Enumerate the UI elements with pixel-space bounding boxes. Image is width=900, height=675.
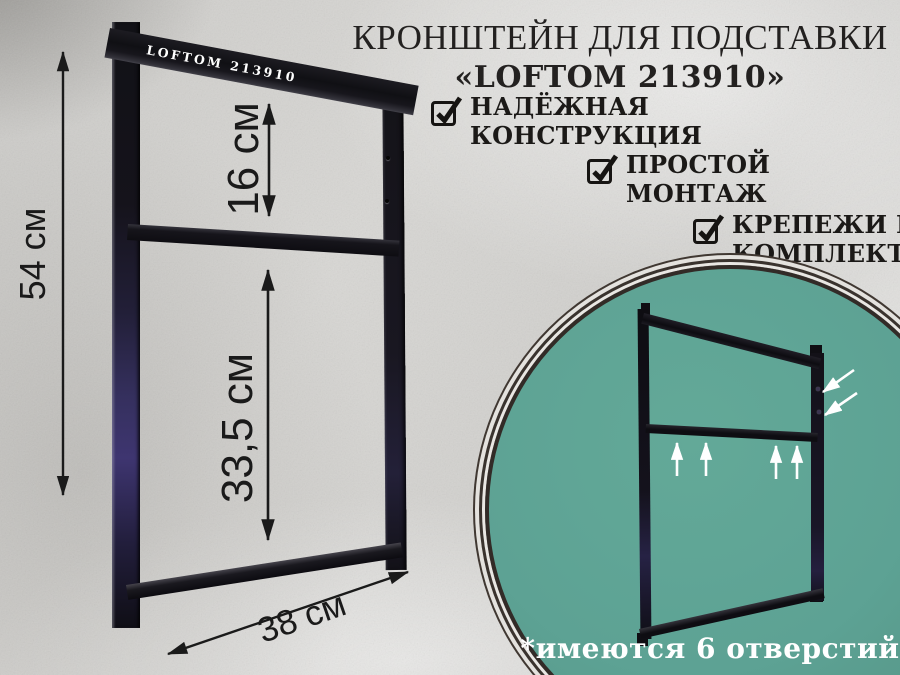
feature-line: НАДЁЖНАЯ <box>470 92 702 121</box>
frame-left-bar <box>112 22 140 628</box>
checkbox-checked-icon <box>586 152 619 185</box>
feature-line: МОНТАЖ <box>626 179 770 208</box>
hole-arrows <box>489 269 900 675</box>
mount-hole <box>385 199 389 203</box>
feature-item-reliable: НАДЁЖНАЯ КОНСТРУКЦИЯ <box>430 92 702 150</box>
feature-line: КОМПЛЕКТЕ <box>732 239 900 268</box>
detail-inset-circle <box>485 265 900 675</box>
feature-text: КРЕПЕЖИ В КОМПЛЕКТЕ <box>732 210 900 268</box>
feature-text: ПРОСТОЙ МОНТАЖ <box>626 150 770 208</box>
hole-arrow-diagonal <box>825 393 857 415</box>
hole-arrow-diagonal <box>823 370 854 392</box>
hole-count-note: *имеются 6 отверстий <box>520 632 900 665</box>
feature-line: КРЕПЕЖИ В <box>732 210 900 239</box>
dimension-label-bottom-section: 33,5 см <box>213 338 263 518</box>
feature-item-hardware-included: КРЕПЕЖИ В КОМПЛЕКТЕ <box>692 210 900 268</box>
product-code-title: «LOFTOM 213910» <box>340 60 900 95</box>
header: КРОНШТЕЙН ДЛЯ ПОДСТАВКИ «LOFTOM 213910» <box>340 18 900 95</box>
dimension-label-height: 54 см <box>12 184 54 324</box>
feature-line: ПРОСТОЙ <box>626 150 770 179</box>
feature-item-easy-mount: ПРОСТОЙ МОНТАЖ <box>586 150 770 208</box>
mount-hole <box>386 156 390 160</box>
page-title: КРОНШТЕЙН ДЛЯ ПОДСТАВКИ <box>340 18 900 58</box>
frame-right-bar <box>382 88 406 570</box>
feature-text: НАДЁЖНАЯ КОНСТРУКЦИЯ <box>470 92 702 150</box>
feature-line: КОНСТРУКЦИЯ <box>470 121 702 150</box>
checkbox-checked-icon <box>692 212 725 245</box>
dimension-label-top-section: 16 см <box>219 89 269 229</box>
checkbox-checked-icon <box>430 94 463 127</box>
product-card: КРОНШТЕЙН ДЛЯ ПОДСТАВКИ «LOFTOM 213910» … <box>0 0 900 675</box>
frame-brand-label: LOFTOM 213910 <box>145 42 298 85</box>
dimension-label-width: 38 см <box>220 573 384 663</box>
